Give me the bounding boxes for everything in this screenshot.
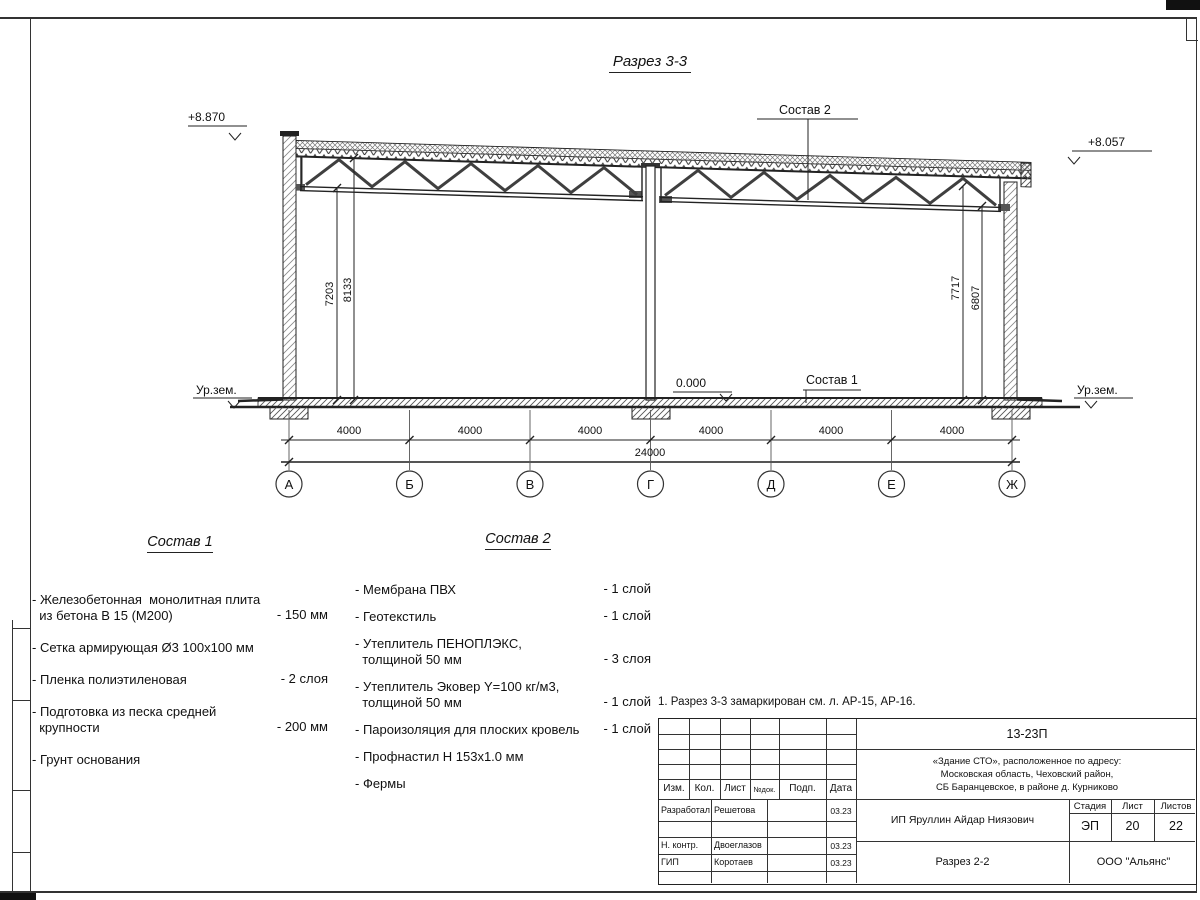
dim-total: 24000: [620, 447, 680, 459]
dim-bay: 4000: [324, 425, 374, 437]
list-item: - Утеплитель ПЕНОПЛЭКС, толщиной 50 мм- …: [355, 636, 651, 668]
item-text: - Утеплитель Эковер Y=100 кг/м3, толщино…: [355, 679, 605, 711]
item-text: - Грунт основания: [32, 752, 282, 768]
floor-and-ground: [230, 398, 1080, 419]
elevation-right: +8.057: [1088, 135, 1125, 149]
axis-label-e: Е: [879, 477, 905, 492]
section-title: Разрез 3-3: [560, 53, 740, 70]
tb-role: Разработал: [661, 805, 711, 815]
horizontal-dimensions: [281, 410, 1020, 470]
list-item: - Грунт основания: [32, 752, 328, 768]
tb-col-izm: Изм.: [659, 783, 689, 794]
elevation-left: +8.870: [188, 110, 225, 124]
tb-sheets-value: 22: [1154, 819, 1198, 833]
dim-bay: 4000: [927, 425, 977, 437]
sostav2-heading: Состав 2: [485, 531, 550, 550]
sostav2-heading-wrap: Состав 2: [370, 530, 666, 548]
list-item: - Мембрана ПВХ- 1 слой: [355, 582, 651, 598]
tb-stage-value: ЭП: [1069, 819, 1111, 833]
dim-bay: 4000: [565, 425, 615, 437]
tb-client: ИП Яруллин Айдар Ниязович: [856, 814, 1069, 826]
leader-label-sostav1: Состав 1: [806, 373, 858, 387]
axis-label-zh: Ж: [999, 477, 1025, 492]
list-item: - Геотекстиль- 1 слой: [355, 609, 651, 625]
list-item: - Пароизоляция для плоских кровель- 1 сл…: [355, 722, 651, 738]
sostav1-heading-wrap: Состав 1: [32, 533, 328, 551]
axis-label-a: А: [276, 477, 302, 492]
item-value: - 1 слой: [603, 581, 651, 597]
item-text: - Пароизоляция для плоских кровель: [355, 722, 605, 738]
sostav2-list: - Мембрана ПВХ- 1 слой - Геотекстиль- 1 …: [355, 582, 651, 803]
leader-label-sostav2: Состав 2: [779, 103, 831, 117]
note-text: 1. Разрез 3-3 замаркирован см. л. АР-15,…: [658, 696, 916, 708]
list-item: - Фермы: [355, 776, 651, 792]
dim-bay: 4000: [806, 425, 856, 437]
tb-line: [1069, 813, 1195, 814]
axis-label-b: Б: [397, 477, 423, 492]
tb-line: [659, 734, 856, 735]
item-text: - Утеплитель ПЕНОПЛЭКС, толщиной 50 мм: [355, 636, 605, 668]
ground-level-label-right: Ур.зем.: [1077, 383, 1118, 397]
tb-col-podp: Подп.: [779, 783, 826, 794]
tb-line: [856, 841, 1195, 842]
drawing-sheet: Разрез 3-3 +8.870 +8.057 0.000 Ур.зем. У…: [0, 0, 1200, 900]
tb-line: [659, 854, 856, 855]
list-item: - Сетка армирующая Ø3 100х100 мм: [32, 640, 328, 656]
tb-role: ГИП: [661, 857, 711, 867]
tb-col-ndok: №док.: [750, 785, 779, 794]
dim-bay: 4000: [445, 425, 495, 437]
item-text: - Профнастил Н 153х1.0 мм: [355, 749, 605, 765]
item-text: - Пленка полиэтиленовая: [32, 672, 282, 688]
item-value: - 200 мм: [277, 719, 328, 735]
list-item: - Железобетонная монолитная плита из бет…: [32, 592, 328, 624]
list-item: - Пленка полиэтиленовая- 2 слоя: [32, 672, 328, 688]
tb-company: ООО "Альянс": [1069, 856, 1198, 868]
tb-line: [659, 821, 856, 822]
sostav1-list: - Железобетонная монолитная плита из бет…: [32, 592, 328, 784]
sostav1-heading: Состав 1: [147, 534, 212, 553]
item-value: - 1 слой: [603, 694, 651, 710]
tb-col-list: Лист: [720, 783, 750, 794]
tb-line: [659, 764, 856, 765]
list-item: - Подготовка из песка средней крупности-…: [32, 704, 328, 736]
tb-line: [659, 871, 856, 872]
tb-name: Коротаев: [714, 857, 768, 867]
item-text: - Фермы: [355, 776, 605, 792]
tb-col-data: Дата: [826, 783, 856, 794]
dim-6807: 6807: [970, 286, 982, 310]
item-text: - Сетка армирующая Ø3 100х100 мм: [32, 640, 282, 656]
dim-7717: 7717: [950, 276, 962, 300]
elevation-zero: 0.000: [676, 376, 706, 390]
tb-name: Двоеглазов: [714, 840, 768, 850]
item-value: - 2 слоя: [281, 671, 328, 687]
item-value: - 3 слоя: [604, 651, 651, 667]
tb-stage-label: Стадия: [1069, 801, 1111, 812]
item-text: - Мембрана ПВХ: [355, 582, 605, 598]
tb-section-name: Разрез 2-2: [856, 856, 1069, 868]
tb-sheet-label: Лист: [1111, 801, 1154, 812]
dim-7203: 7203: [324, 282, 336, 306]
axis-label-v: В: [517, 477, 543, 492]
axis-label-d: Д: [758, 477, 784, 492]
axis-label-g: Г: [638, 477, 664, 492]
tb-date: 03.23: [827, 806, 855, 816]
tb-address-line: Московская область, Чеховский район,: [856, 768, 1198, 781]
tb-doc-number: 13-23П: [856, 727, 1198, 741]
dim-8133: 8133: [342, 278, 354, 302]
dim-bay: 4000: [686, 425, 736, 437]
tb-address-line: СБ Баранцевское, в районе д. Курниково: [856, 781, 1198, 794]
title-block: Изм. Кол. Лист №док. Подп. Дата Разработ…: [658, 718, 1197, 885]
list-item: - Профнастил Н 153х1.0 мм: [355, 749, 651, 765]
tb-address-line: «Здание СТО», расположенное по адресу:: [856, 755, 1198, 768]
tb-sheet-value: 20: [1111, 819, 1154, 833]
item-text: - Геотекстиль: [355, 609, 605, 625]
item-value: - 150 мм: [277, 607, 328, 623]
tb-address: «Здание СТО», расположенное по адресу: М…: [856, 755, 1198, 794]
item-value: - 1 слой: [603, 721, 651, 737]
tb-line: [659, 779, 856, 780]
tb-role: Н. контр.: [661, 840, 711, 850]
item-value: - 1 слой: [603, 608, 651, 624]
tb-line: [659, 837, 856, 838]
tb-date: 03.23: [827, 841, 855, 851]
vertical-dimensions: [333, 154, 986, 404]
item-text: - Подготовка из песка средней крупности: [32, 704, 282, 736]
item-text: - Железобетонная монолитная плита из бет…: [32, 592, 282, 624]
tb-name: Решетова: [714, 805, 768, 815]
tb-line: [659, 749, 1195, 750]
ground-level-label-left: Ур.зем.: [196, 383, 237, 397]
section-title-text: Разрез 3-3: [609, 53, 691, 73]
list-item: - Утеплитель Эковер Y=100 кг/м3, толщино…: [355, 679, 651, 711]
tb-col-kol: Кол.: [689, 783, 720, 794]
tb-sheets-label: Листов: [1154, 801, 1198, 812]
tb-date: 03.23: [827, 858, 855, 868]
